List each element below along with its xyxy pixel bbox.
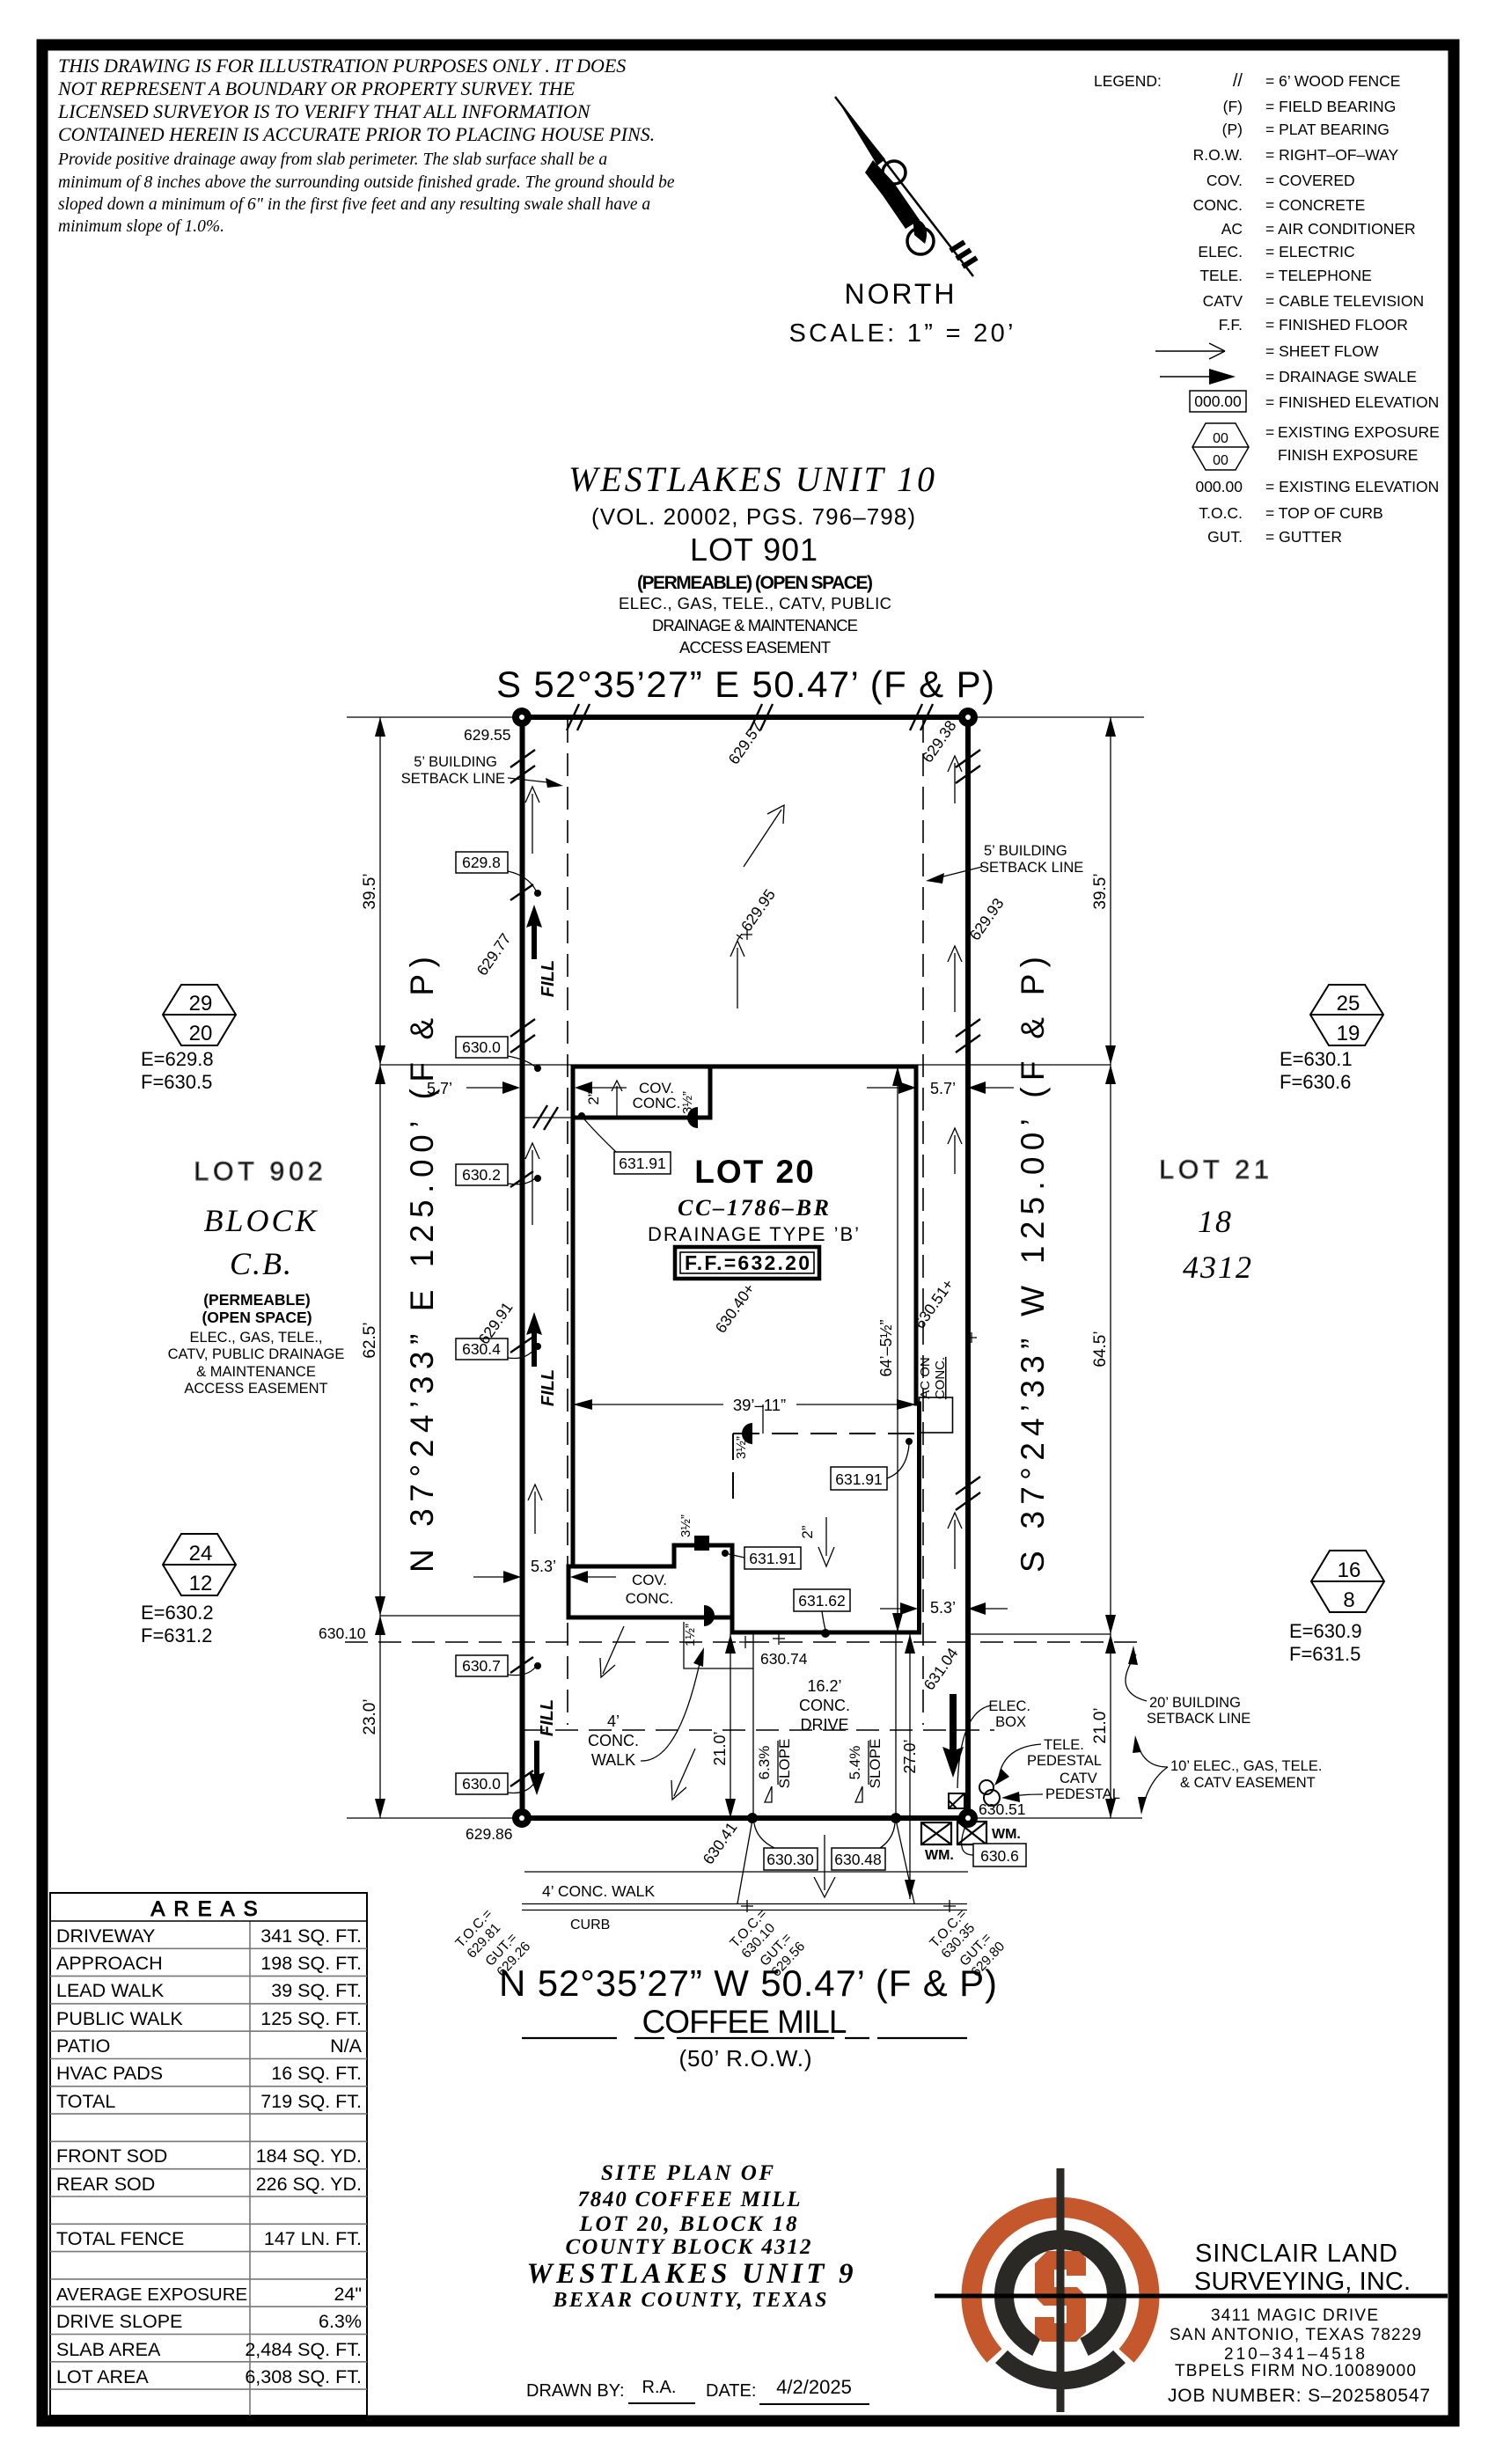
svg-text:629.55: 629.55 xyxy=(464,726,511,744)
svg-text:21.0’: 21.0’ xyxy=(1091,1707,1110,1743)
svg-text:39.5’: 39.5’ xyxy=(361,873,379,909)
svg-text:27.0’: 27.0’ xyxy=(901,1739,919,1773)
svg-text:6,308 SQ. FT.: 6,308 SQ. FT. xyxy=(245,2366,362,2387)
svg-text:= GUTTER: = GUTTER xyxy=(1265,528,1342,546)
svg-text:= RIGHT–OF–WAY: = RIGHT–OF–WAY xyxy=(1265,146,1399,164)
svg-text:629.86: 629.86 xyxy=(466,1825,513,1843)
svg-text:FINISH EXPOSURE: FINISH EXPOSURE xyxy=(1278,446,1418,464)
svg-text:REAR SOD: REAR SOD xyxy=(56,2174,155,2195)
svg-text:APPROACH: APPROACH xyxy=(56,1953,163,1974)
svg-text:5.3’: 5.3’ xyxy=(531,1558,556,1575)
svg-text:(F): (F) xyxy=(1223,98,1243,115)
svg-text:631.91: 631.91 xyxy=(835,1470,883,1488)
svg-text:39.5’: 39.5’ xyxy=(1091,873,1110,909)
svg-text:ELEC., GAS, TELE.,: ELEC., GAS, TELE., xyxy=(189,1330,322,1346)
svg-text:341 SQ. FT.: 341 SQ. FT. xyxy=(260,1925,362,1947)
svg-text:SLAB AREA: SLAB AREA xyxy=(56,2339,161,2360)
svg-text:(PERMEABLE) (OPEN SPACE): (PERMEABLE) (OPEN SPACE) xyxy=(637,573,873,593)
svg-text:3½”: 3½” xyxy=(678,1514,693,1537)
svg-text:(PERMEABLE): (PERMEABLE) xyxy=(203,1291,311,1309)
svg-text:S 37°24’33” W 125.00’ (F: S 37°24’33” W 125.00’ (F & P) xyxy=(1015,957,1051,1573)
svg-text:24": 24" xyxy=(334,2284,362,2305)
svg-text:CURB: CURB xyxy=(570,1918,610,1932)
svg-text:20: 20 xyxy=(189,1022,213,1045)
svg-text:ELEC.: ELEC. xyxy=(988,1698,1030,1714)
svg-text:184 SQ. YD.: 184 SQ. YD. xyxy=(256,2145,362,2167)
svg-text://: // xyxy=(1233,71,1243,91)
svg-text:AC ON: AC ON xyxy=(918,1357,933,1399)
svg-text:F=631.5: F=631.5 xyxy=(1289,1643,1360,1665)
svg-text:2”: 2” xyxy=(799,1525,816,1538)
svg-text:6.3%: 6.3% xyxy=(319,2311,362,2332)
svg-text:& CATV EASEMENT: & CATV EASEMENT xyxy=(1180,1775,1316,1791)
svg-text:630.2: 630.2 xyxy=(462,1166,501,1184)
svg-text:JOB NUMBER: S–202580547: JOB NUMBER: S–202580547 xyxy=(1168,2386,1430,2406)
svg-text:198 SQ. FT.: 198 SQ. FT. xyxy=(260,1953,362,1974)
svg-text:PEDESTAL: PEDESTAL xyxy=(1045,1786,1120,1802)
svg-text:AREAS: AREAS xyxy=(150,1897,266,1921)
svg-text:00: 00 xyxy=(1213,431,1228,446)
svg-text:SLOPE: SLOPE xyxy=(776,1739,793,1789)
svg-text:NORTH: NORTH xyxy=(845,278,955,310)
svg-text:F.F.: F.F. xyxy=(1219,316,1243,334)
svg-text:(P): (P) xyxy=(1222,121,1243,138)
svg-text:DRAWN BY:: DRAWN BY: xyxy=(526,2381,625,2401)
svg-text:= FINISHED ELEVATION: = FINISHED ELEVATION xyxy=(1265,393,1439,411)
svg-text:5’ BUILDING: 5’ BUILDING xyxy=(414,754,497,770)
svg-text:CONC.: CONC. xyxy=(933,1357,948,1399)
svg-text:629.8: 629.8 xyxy=(462,854,501,871)
svg-text:630.0: 630.0 xyxy=(462,1038,501,1056)
svg-text:18: 18 xyxy=(1198,1204,1233,1239)
svg-text:TELE.: TELE. xyxy=(1044,1737,1084,1753)
svg-text:minimum slope of 1.0%.: minimum slope of 1.0%. xyxy=(58,217,224,236)
svg-text:39 SQ. FT.: 39 SQ. FT. xyxy=(271,1980,362,2001)
svg-text:630.74: 630.74 xyxy=(760,1650,808,1668)
svg-text:WM.: WM. xyxy=(992,1827,1021,1842)
svg-text:E=630.2: E=630.2 xyxy=(141,1602,214,1624)
svg-text:8: 8 xyxy=(1343,1588,1354,1612)
svg-text:3411 MAGIC DRIVE: 3411 MAGIC DRIVE xyxy=(1211,2306,1378,2325)
svg-text:3½”: 3½” xyxy=(734,1436,749,1459)
svg-text:4312: 4312 xyxy=(1183,1250,1253,1285)
svg-text:000.00: 000.00 xyxy=(1195,478,1243,495)
svg-text:COV.: COV. xyxy=(1206,172,1243,189)
svg-text:HVAC PADS: HVAC PADS xyxy=(56,2063,163,2084)
svg-text:LOT AREA: LOT AREA xyxy=(56,2366,149,2387)
svg-text:= COVERED: = COVERED xyxy=(1265,172,1355,189)
svg-text:FILL: FILL xyxy=(538,1699,557,1736)
svg-text:COV.: COV. xyxy=(632,1572,667,1588)
svg-text:E=630.1: E=630.1 xyxy=(1280,1048,1353,1070)
svg-text:FRONT SOD: FRONT SOD xyxy=(56,2145,167,2167)
svg-text:TELE.: TELE. xyxy=(1199,267,1243,284)
svg-text:5.4%: 5.4% xyxy=(847,1746,863,1780)
svg-text:CONTAINED HEREIN IS ACCURATE P: CONTAINED HEREIN IS ACCURATE PRIOR TO PL… xyxy=(58,123,655,145)
svg-text:ACCESS EASEMENT: ACCESS EASEMENT xyxy=(679,638,831,656)
svg-text:DRIVE: DRIVE xyxy=(800,1716,848,1734)
svg-text:BOX: BOX xyxy=(995,1714,1026,1730)
svg-text:39’–11”: 39’–11” xyxy=(733,1396,786,1414)
svg-text:AVERAGE EXPOSURE: AVERAGE EXPOSURE xyxy=(56,2284,247,2305)
svg-text:WM.: WM. xyxy=(925,1848,954,1863)
svg-text:BEXAR COUNTY, TEXAS: BEXAR COUNTY, TEXAS xyxy=(553,2289,827,2312)
svg-text:LICENSED SURVEYOR IS TO VERIFY: LICENSED SURVEYOR IS TO VERIFY THAT ALL … xyxy=(57,100,591,122)
svg-text:ELEC.: ELEC. xyxy=(1198,243,1243,260)
svg-text:F=630.5: F=630.5 xyxy=(141,1071,212,1093)
svg-text:TOTAL: TOTAL xyxy=(56,2091,115,2112)
svg-text:SCALE: 1” = 20’: SCALE: 1” = 20’ xyxy=(789,319,1014,348)
svg-text:= PLAT BEARING: = PLAT BEARING xyxy=(1265,121,1390,138)
svg-text:SAN ANTONIO, TEXAS 78229: SAN ANTONIO, TEXAS 78229 xyxy=(1170,2326,1421,2344)
svg-text:TBPELS FIRM NO.10089000: TBPELS FIRM NO.10089000 xyxy=(1175,2362,1416,2380)
svg-text:WESTLAKES UNIT 10: WESTLAKES UNIT 10 xyxy=(568,459,938,499)
svg-text:= ELECTRIC: = ELECTRIC xyxy=(1265,243,1355,260)
svg-text:= FINISHED FLOOR: = FINISHED FLOOR xyxy=(1265,316,1408,334)
svg-text:ACCESS EASEMENT: ACCESS EASEMENT xyxy=(184,1381,327,1397)
svg-text:630.48: 630.48 xyxy=(834,1851,882,1868)
svg-text:29: 29 xyxy=(189,992,213,1016)
svg-text:COUNTY BLOCK 4312: COUNTY BLOCK 4312 xyxy=(566,2235,811,2259)
svg-text:LEGEND:: LEGEND: xyxy=(1094,72,1162,90)
svg-text:16: 16 xyxy=(1338,1558,1361,1582)
svg-text:FILL: FILL xyxy=(539,1369,558,1406)
svg-text:23.0’: 23.0’ xyxy=(361,1698,379,1734)
svg-text:25: 25 xyxy=(1337,992,1360,1016)
svg-text:12: 12 xyxy=(189,1572,213,1595)
svg-text:SETBACK LINE: SETBACK LINE xyxy=(1147,1711,1250,1727)
svg-text:5.7’: 5.7’ xyxy=(930,1080,956,1097)
svg-text:6.3%: 6.3% xyxy=(756,1746,773,1780)
svg-text:CONC.: CONC. xyxy=(626,1590,674,1607)
svg-text:= SHEET FLOW: = SHEET FLOW xyxy=(1265,342,1379,360)
svg-text:F=630.6: F=630.6 xyxy=(1280,1071,1351,1093)
svg-text:(VOL. 20002, PGS. 796–798): (VOL. 20002, PGS. 796–798) xyxy=(591,503,915,530)
svg-text:= TELEPHONE: = TELEPHONE xyxy=(1265,267,1372,284)
svg-text:= DRAINAGE SWALE: = DRAINAGE SWALE xyxy=(1265,368,1417,385)
svg-text:64’–5½”: 64’–5½” xyxy=(877,1319,895,1376)
svg-text:sloped down a minimum of 6" in: sloped down a minimum of 6" in the first… xyxy=(58,195,650,214)
svg-text:19: 19 xyxy=(1337,1022,1360,1045)
svg-text:N 52°35’27” W 50.47’ (F &: N 52°35’27” W 50.47’ (F & P) xyxy=(499,1962,997,2004)
svg-text:= TOP OF CURB: = TOP OF CURB xyxy=(1265,504,1383,522)
svg-text:(OPEN SPACE): (OPEN SPACE) xyxy=(202,1309,312,1326)
svg-text:S 52°35’27” E 50.47’ (F &: S 52°35’27” E 50.47’ (F & P) xyxy=(496,664,994,705)
svg-text:631.91: 631.91 xyxy=(619,1155,666,1172)
svg-text:DATE:: DATE: xyxy=(706,2381,756,2401)
svg-text:CONC.: CONC. xyxy=(633,1095,681,1111)
svg-text:LOT 902: LOT 902 xyxy=(194,1157,326,1186)
svg-text:AC: AC xyxy=(1221,220,1243,238)
svg-text:GUT.: GUT. xyxy=(1207,528,1243,546)
svg-text:SETBACK LINE: SETBACK LINE xyxy=(979,860,1083,876)
svg-text:16.2’: 16.2’ xyxy=(807,1677,841,1695)
svg-text:FILL: FILL xyxy=(539,960,558,997)
svg-text:R.O.W.: R.O.W. xyxy=(1193,146,1243,164)
svg-text:630.10: 630.10 xyxy=(319,1624,366,1642)
svg-text:= EXISTING ELEVATION: = EXISTING ELEVATION xyxy=(1265,478,1439,495)
svg-text:DRIVEWAY: DRIVEWAY xyxy=(56,1925,155,1947)
svg-text:=: = xyxy=(1265,423,1274,441)
svg-text:(50’ R.O.W.): (50’ R.O.W.) xyxy=(679,2045,812,2072)
svg-text:SURVEYING, INC.: SURVEYING, INC. xyxy=(1194,2268,1411,2296)
svg-text:5’ BUILDING: 5’ BUILDING xyxy=(984,843,1067,859)
svg-text:C.B.: C.B. xyxy=(230,1246,293,1281)
svg-text:DRAINAGE & MAINTENANCE: DRAINAGE & MAINTENANCE xyxy=(652,616,858,634)
svg-text:630.6: 630.6 xyxy=(980,1847,1019,1865)
svg-text:147 LN. FT.: 147 LN. FT. xyxy=(264,2228,362,2249)
svg-text:CONC.: CONC. xyxy=(588,1732,639,1749)
svg-text:2,484 SQ. FT.: 2,484 SQ. FT. xyxy=(245,2339,362,2360)
svg-text:7840 COFFEE MILL: 7840 COFFEE MILL xyxy=(578,2188,801,2211)
svg-text:1½”: 1½” xyxy=(683,1624,698,1646)
svg-text:PEDESTAL: PEDESTAL xyxy=(1027,1753,1102,1769)
svg-text:00: 00 xyxy=(1213,453,1228,468)
svg-text:21.0’: 21.0’ xyxy=(711,1731,729,1765)
svg-text:= AIR CONDITIONER: = AIR CONDITIONER xyxy=(1265,220,1416,238)
svg-text:719 SQ. FT.: 719 SQ. FT. xyxy=(260,2091,362,2112)
svg-text:CATV: CATV xyxy=(1060,1771,1097,1786)
svg-text:4’: 4’ xyxy=(607,1712,620,1730)
svg-text:TOTAL FENCE: TOTAL FENCE xyxy=(56,2228,184,2249)
svg-text:= CABLE TELEVISION: = CABLE TELEVISION xyxy=(1265,292,1424,310)
svg-text:DRAINAGE TYPE ’B’: DRAINAGE TYPE ’B’ xyxy=(648,1223,859,1245)
svg-text:LOT 901: LOT 901 xyxy=(690,532,820,568)
svg-text:COFFEE MILL: COFFEE MILL xyxy=(642,2004,847,2040)
svg-text:630.0: 630.0 xyxy=(462,1775,501,1793)
svg-text:3½”: 3½” xyxy=(680,1091,695,1114)
svg-text:226 SQ. YD.: 226 SQ. YD. xyxy=(256,2174,362,2195)
svg-text:SINCLAIR LAND: SINCLAIR LAND xyxy=(1195,2240,1397,2268)
svg-text:CATV, PUBLIC DRAINAGE: CATV, PUBLIC DRAINAGE xyxy=(168,1346,345,1362)
svg-text:CONC.: CONC. xyxy=(1193,196,1243,214)
svg-text:= 6’ WOOD FENCE: = 6’ WOOD FENCE xyxy=(1265,72,1400,90)
svg-text:631.62: 631.62 xyxy=(798,1592,846,1610)
svg-text:10’ ELEC., GAS, TELE.: 10’ ELEC., GAS, TELE. xyxy=(1170,1758,1322,1774)
svg-text:ELEC., GAS, TELE., CATV, P: ELEC., GAS, TELE., CATV, PUBLIC xyxy=(619,594,891,612)
svg-text:24: 24 xyxy=(189,1542,213,1566)
svg-text:631.91: 631.91 xyxy=(749,1550,796,1567)
svg-text:BLOCK: BLOCK xyxy=(203,1203,319,1238)
svg-text:16 SQ. FT.: 16 SQ. FT. xyxy=(271,2063,362,2084)
svg-text:EXISTING EXPOSURE: EXISTING EXPOSURE xyxy=(1278,423,1440,441)
svg-text:DRIVE SLOPE: DRIVE SLOPE xyxy=(56,2311,182,2332)
svg-text:4’ CONC. WALK: 4’ CONC. WALK xyxy=(542,1882,655,1900)
svg-text:PATIO: PATIO xyxy=(56,2035,110,2057)
svg-text:SETBACK LINE: SETBACK LINE xyxy=(401,771,505,787)
svg-text:20’ BUILDING: 20’ BUILDING xyxy=(1149,1695,1241,1711)
svg-text:LOT 21: LOT 21 xyxy=(1159,1155,1273,1184)
svg-text:LOT 20: LOT 20 xyxy=(694,1154,815,1190)
svg-text:LEAD WALK: LEAD WALK xyxy=(56,1980,165,2001)
svg-text:Provide positive drainage away: Provide positive drainage away from slab… xyxy=(57,150,607,169)
svg-text:PUBLIC WALK: PUBLIC WALK xyxy=(56,2008,183,2029)
svg-text:WALK: WALK xyxy=(591,1751,635,1769)
svg-text:E=629.8: E=629.8 xyxy=(141,1048,214,1070)
svg-text:minimum of 8 inches above the: minimum of 8 inches above the surroundin… xyxy=(58,173,675,192)
svg-text:= FIELD BEARING: = FIELD BEARING xyxy=(1265,98,1396,115)
svg-text:THIS DRAWING IS FOR ILLUSTRATI: THIS DRAWING IS FOR ILLUSTRATION PURPOSE… xyxy=(58,55,626,77)
svg-text:2”: 2” xyxy=(585,1091,602,1104)
svg-text:N/A: N/A xyxy=(330,2035,363,2057)
svg-text:CATV: CATV xyxy=(1203,292,1243,310)
svg-text:NOT REPRESENT A BOUNDARY OR PR: NOT REPRESENT A BOUNDARY OR PROPERTY SUR… xyxy=(57,77,576,99)
svg-text:T.O.C.: T.O.C. xyxy=(1199,504,1243,522)
svg-text:SITE PLAN OF: SITE PLAN OF xyxy=(601,2161,774,2185)
svg-text:CONC.: CONC. xyxy=(799,1697,850,1714)
svg-text:= CONCRETE: = CONCRETE xyxy=(1265,196,1365,214)
svg-text:630.7: 630.7 xyxy=(462,1657,501,1675)
svg-text:4/2/2025: 4/2/2025 xyxy=(776,2376,852,2398)
svg-text:64.5’: 64.5’ xyxy=(1091,1331,1110,1367)
svg-text:R.A.: R.A. xyxy=(642,2378,677,2397)
svg-text:E=630.9: E=630.9 xyxy=(1289,1620,1362,1642)
svg-text:SLOPE: SLOPE xyxy=(867,1739,884,1789)
svg-text:& MAINTENANCE: & MAINTENANCE xyxy=(196,1364,316,1380)
svg-text:F=631.2: F=631.2 xyxy=(141,1624,212,1646)
svg-text:630.30: 630.30 xyxy=(766,1851,814,1868)
svg-text:125 SQ. FT.: 125 SQ. FT. xyxy=(260,2008,362,2029)
svg-text:62.5’: 62.5’ xyxy=(361,1322,379,1358)
svg-text:000.00: 000.00 xyxy=(1194,392,1242,410)
svg-text:5.3’: 5.3’ xyxy=(930,1599,956,1617)
